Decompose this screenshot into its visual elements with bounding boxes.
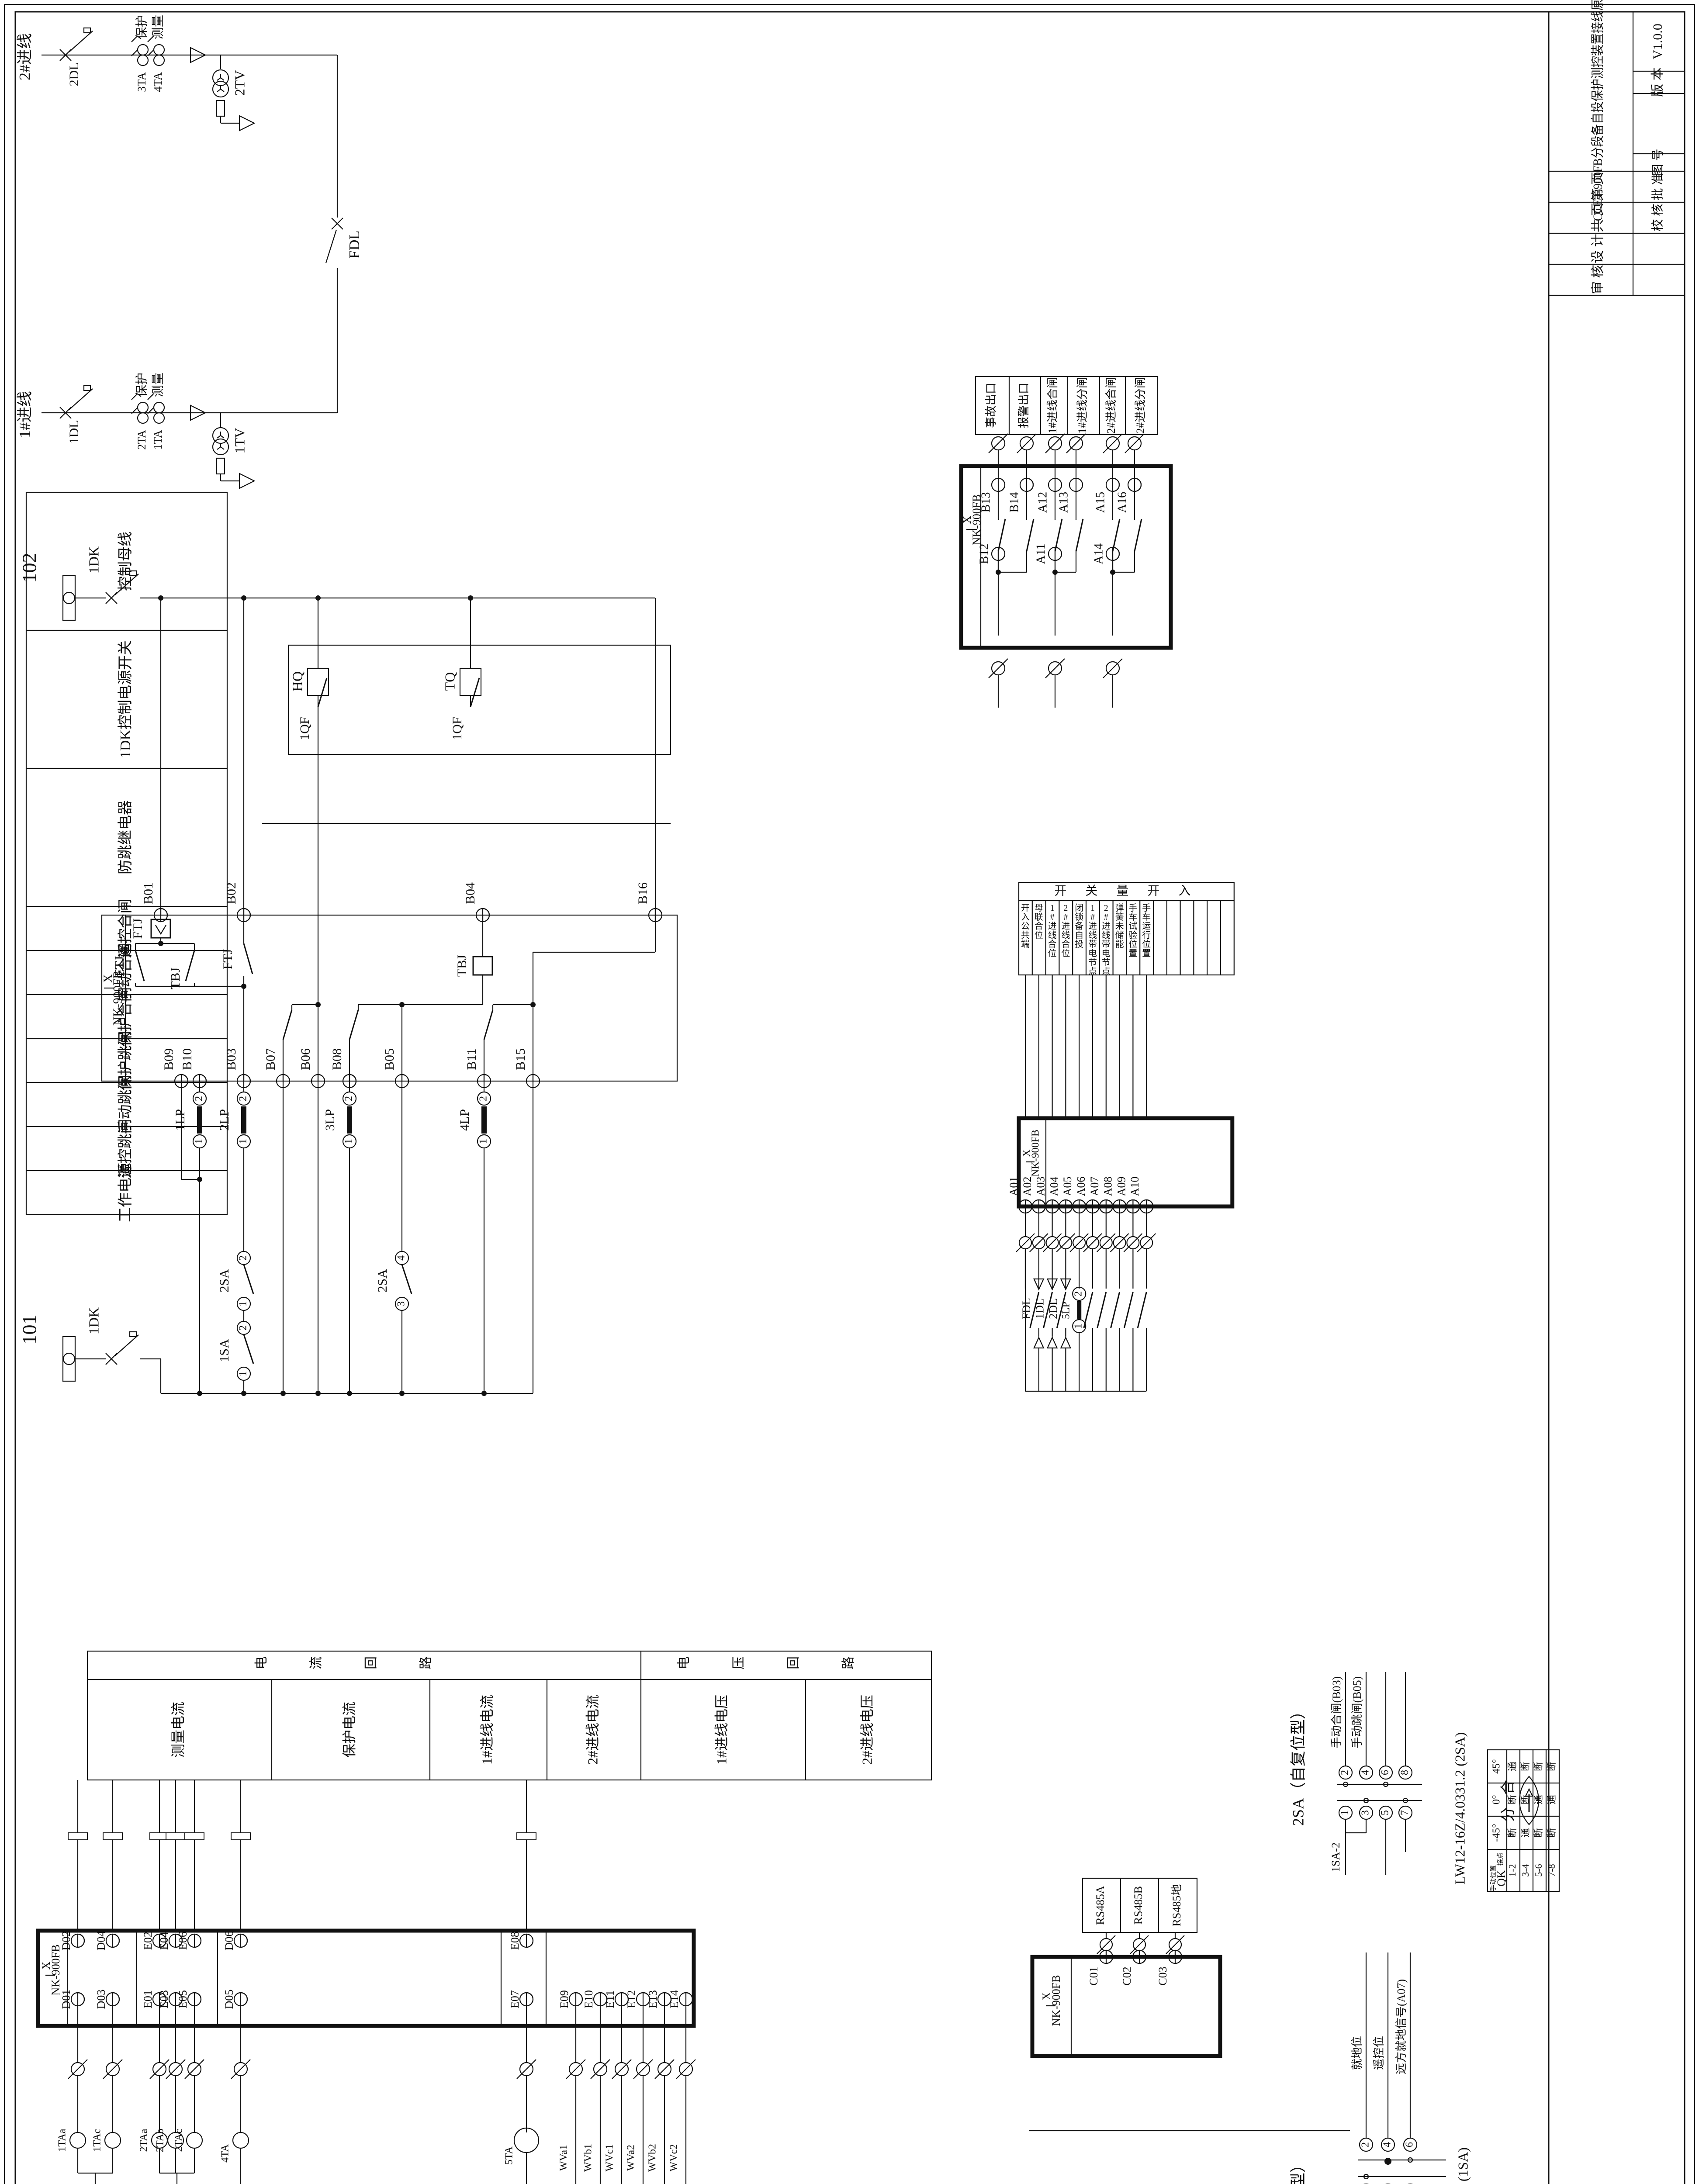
coil-label: HQ (289, 671, 305, 691)
terminal-label: E02 (142, 1932, 154, 1950)
comm-label: RS485B (1132, 1886, 1145, 1925)
qk-cell: 通 (1507, 1762, 1518, 1771)
aux-contact-label: 1QF (450, 717, 464, 740)
device-name: NK-900FB (1050, 1975, 1062, 2026)
contact-number: 2 (1339, 1770, 1351, 1775)
contact-blade (471, 678, 479, 707)
junction-dot (1384, 2158, 1391, 2165)
link-strap (347, 1106, 352, 1133)
qk-cell: 通 (1546, 1795, 1557, 1804)
ct-circle (138, 402, 148, 413)
terminal-label: B01 (141, 882, 156, 904)
bus-label: 102 (18, 553, 41, 583)
terminal-half-fill (1113, 478, 1119, 491)
switch-title: 1SA（定位型） (1289, 2157, 1307, 2184)
contact-number: 2 (238, 1096, 249, 1101)
terminal-half-fill (194, 1934, 201, 1947)
wiring-diagram-canvas: CCET-900FB分段备自投保护测控装置接线原理图第 页共 页设 计审 核V1… (0, 0, 1699, 2184)
junction-dot (481, 1391, 487, 1396)
qk-cell: 通 (1520, 1828, 1531, 1838)
terminal-label: A11 (1034, 543, 1048, 564)
ct-circle (154, 402, 164, 413)
switch-title: 2SA（自复位型） (1289, 1704, 1307, 1826)
wire (221, 89, 224, 92)
terminal-label: A02 (1021, 1177, 1034, 1196)
switch-model: LW12-16Z/4.0331.2 (2SA) (1452, 1732, 1467, 1885)
input-column-label: 手车运行位置 (1142, 903, 1151, 958)
link-label: 4LP (457, 1109, 472, 1131)
qk-cell: QK (1495, 1870, 1508, 1887)
jumper-label: 1SA-2 (1329, 1842, 1342, 1872)
function-cell-label: 1DK控制电源开关 (117, 640, 134, 758)
contact-blade (998, 519, 1005, 551)
terminal-half-fill (241, 1993, 247, 2006)
test-link-bar (68, 1833, 87, 1840)
contact-number: 1 (194, 1139, 205, 1144)
contact-number: 3 (396, 1301, 407, 1306)
terminal-label: B16 (636, 882, 650, 904)
dk-label: 1DK (86, 1307, 101, 1334)
pt-wire-label: WVa1 (558, 2145, 570, 2171)
terminal-label: E13 (647, 1990, 659, 2008)
terminal-label: B05 (382, 1048, 397, 1070)
terminal-half-fill (113, 1934, 119, 1947)
contact-blade (349, 1010, 358, 1040)
terminal-label: E09 (558, 1990, 571, 2008)
indicator-left: 分 (1500, 1807, 1516, 1822)
ac-cell-label: 保护电流 (341, 1702, 357, 1758)
contact-blade (283, 1010, 292, 1040)
ct-label: 2TA (135, 430, 148, 450)
switch-model: LW12-16/4.5711.3 (1SA) (1455, 2147, 1471, 2184)
terminal-label: A16 (1115, 492, 1129, 513)
test-link-bar (103, 1833, 122, 1840)
qk-cell: 7-8 (1546, 1864, 1557, 1876)
comm-label: RS485A (1094, 1886, 1107, 1925)
relay-label: TBJ (455, 955, 469, 977)
device-name: NK-900FB (49, 1944, 62, 1995)
switch-blade (326, 230, 336, 263)
link-label: 1LP (173, 1109, 187, 1131)
junction-dot (158, 595, 163, 601)
terminal-label: A06 (1075, 1177, 1087, 1196)
aux-contact-label: 1QF (298, 717, 312, 740)
terminal-label: E03 (158, 1990, 170, 2008)
link-strap (1077, 1301, 1081, 1319)
relay-label: FTJ (131, 918, 145, 939)
contact-number: 5 (1380, 1810, 1391, 1815)
fuse (217, 100, 225, 116)
terminal-label: A09 (1115, 1177, 1128, 1196)
input-column-label: 2#进线合位 (1061, 903, 1070, 958)
wire (217, 447, 221, 449)
contact-number: 1 (343, 1139, 355, 1144)
pt-wire-label: WVb1 (583, 2144, 594, 2172)
ac-cell-label: 测量电流 (170, 1702, 186, 1758)
terminal-label: A13 (1057, 492, 1070, 513)
output-label: 报警出口 (1017, 383, 1030, 428)
terminal-label: B09 (162, 1048, 176, 1070)
bus-terminal-circle (63, 592, 75, 604)
fuse (217, 458, 225, 474)
contact-number: 1 (1073, 1324, 1084, 1329)
terminal-half-fill (241, 1934, 247, 1947)
contact-blade (1124, 1292, 1133, 1328)
contact-blade (402, 1265, 412, 1294)
ct-use-label: 测量 (151, 15, 165, 39)
contact-number: 1 (478, 1139, 489, 1144)
coil-mark (156, 925, 166, 934)
contact-number: 7 (1399, 1810, 1411, 1815)
link-strap (241, 1106, 246, 1133)
output-label-table (976, 377, 1158, 435)
terminal-half-fill (113, 1993, 119, 2006)
ct-label: 4TA (220, 2144, 231, 2163)
contact-blade (1084, 1292, 1093, 1328)
terminal-label: C03 (1156, 1966, 1169, 1985)
ct-label: 4TA (152, 72, 164, 92)
ct-label: 5TA (504, 2146, 515, 2165)
output-label: 2#进线分闸 (1134, 377, 1147, 434)
input-column-label: 2#进线带电节点 (1102, 903, 1111, 977)
terminal-label: C01 (1087, 1966, 1100, 1985)
qk-cell: 5-6 (1533, 1864, 1544, 1876)
contact-blade (1097, 1292, 1106, 1328)
ct-use-label: 保护 (135, 373, 149, 397)
input-column-label: 手车试验位置 (1128, 903, 1137, 958)
contact-blade (318, 678, 327, 707)
ct-circle (154, 45, 164, 55)
bus-terminal-circle (63, 1353, 75, 1365)
terminal-half-fill (526, 1993, 533, 2006)
pt-wire-label: WVc2 (668, 2144, 680, 2172)
terminal-label: A08 (1102, 1177, 1114, 1196)
output-label: 1#进线合闸 (1046, 377, 1059, 434)
qk-cell: 断 (1507, 1828, 1518, 1838)
contact-blade (244, 1334, 253, 1364)
terminal-label: E07 (509, 1990, 521, 2008)
arrow-up (1061, 1337, 1070, 1348)
contact-blade (1138, 1292, 1146, 1328)
junction-dot (399, 1391, 405, 1396)
terminal-label: A14 (1092, 543, 1105, 564)
terminal-half-fill (686, 1993, 692, 2006)
ct-secondary (105, 2132, 121, 2148)
wire (217, 435, 221, 438)
contact-blade (186, 950, 194, 981)
input-column-label: 1#进线带电节点 (1088, 903, 1097, 977)
pages-label: 共 页 (1591, 203, 1605, 232)
terminal-label: A10 (1128, 1177, 1141, 1196)
version-label: 版 本 (1651, 67, 1665, 97)
switch-name-label: 2SA (217, 1269, 232, 1292)
junction-dot (468, 595, 473, 601)
pt-label: 2TV (232, 70, 247, 96)
function-cell-label: 工作电源 (117, 1163, 134, 1222)
terminal-half-fill (1055, 478, 1062, 491)
contact-blade (1113, 519, 1120, 551)
contact-blade (244, 943, 253, 974)
arrow-right (239, 473, 254, 488)
contact-label: FTJ (112, 956, 127, 976)
ct-circle (138, 45, 148, 55)
junction-dot (280, 1391, 286, 1396)
relay-coil (151, 919, 170, 938)
ac-cell-label: 2#进线电流 (585, 1695, 600, 1765)
input-column-label: 母联合位 (1035, 903, 1043, 940)
contact-number: 2 (1360, 2142, 1371, 2147)
output-label: 2#进线合闸 (1105, 377, 1118, 434)
contact-number: 6 (1404, 2142, 1415, 2147)
wire (221, 435, 224, 438)
terminal-label: E08 (509, 1932, 521, 1950)
terminal-label: B07 (263, 1048, 278, 1070)
link-strap (197, 1106, 202, 1133)
qk-cell: 接点 (1496, 1852, 1504, 1866)
bus-terminal (63, 1337, 75, 1381)
qk-cell: 1-2 (1507, 1864, 1518, 1876)
output-label: 1#进线分闸 (1076, 377, 1089, 434)
tie-breaker-label: FDL (346, 231, 363, 259)
review-label: 审 核 (1591, 265, 1605, 294)
inner-border (15, 12, 1685, 2184)
ac-table (87, 1651, 931, 1780)
arrow-right (239, 116, 254, 131)
contact-number: 1 (238, 1371, 249, 1376)
function-cell-label: 控制母线 (117, 532, 134, 591)
terminal-label: A01 (1007, 1177, 1020, 1196)
wire (217, 89, 221, 92)
terminal-label: A03 (1035, 1177, 1047, 1196)
terminal-half-fill (1076, 478, 1083, 491)
output-label: 事故出口 (985, 383, 997, 428)
terminal-half-fill (998, 478, 1005, 491)
pt-wire-label: WVb2 (647, 2144, 658, 2172)
switch-blade (69, 31, 93, 52)
function-cell-label: 防跳继电器 (117, 800, 134, 874)
diagram-content: CCET-900FB分段备自投保护测控装置接线原理图第 页共 页设 计审 核V1… (16, 0, 1665, 2184)
terminal-label: C02 (1121, 1966, 1133, 1985)
ct-label: 2TAc (173, 2129, 185, 2152)
switch-box (84, 386, 90, 390)
terminal-half-fill (1135, 478, 1141, 491)
breaker-mechanism-box (288, 645, 671, 754)
ct-secondary (187, 2132, 202, 2148)
terminal-label: B13 (979, 492, 993, 513)
ct-circle (154, 413, 164, 423)
wire (221, 78, 224, 80)
wire (217, 78, 221, 80)
contact-number: 2 (478, 1096, 489, 1101)
terminal-label: B12 (977, 544, 991, 564)
contact-number: 1 (238, 1139, 249, 1144)
terminal-label: A12 (1036, 492, 1049, 513)
bus-label: 101 (18, 1315, 41, 1345)
qk-cell: 3-4 (1520, 1864, 1531, 1876)
junction-dot (241, 595, 246, 601)
terminal-label: E06 (176, 1932, 189, 1950)
ct-use-label: 保护 (135, 15, 149, 39)
contact-blade (1135, 519, 1142, 551)
ct-label: 1TA (152, 430, 164, 450)
voltage-header: 电 压 回 路 (677, 1637, 856, 1669)
input-table-header: 开 关 量 开 入 (1054, 884, 1198, 898)
terminal-label: B04 (463, 882, 478, 904)
current-header: 电 流 回 路 (254, 1637, 433, 1669)
ct-secondary (233, 2132, 249, 2148)
ct-secondary (70, 2132, 86, 2148)
terminal-half-fill (576, 1993, 582, 2006)
ct-label: 1TAc (92, 2129, 103, 2152)
terminal-label: E10 (582, 1990, 595, 2008)
qk-cell: 断 (1546, 1762, 1557, 1771)
junction-dot (197, 1391, 202, 1396)
sheet-no-label: 图 号 (1651, 149, 1664, 176)
qk-cell: 45° (1491, 1759, 1502, 1774)
ac-cell-label: 1#进线电压 (713, 1695, 729, 1765)
breaker-label: 1DL (67, 420, 81, 444)
contact-number: 1 (238, 1301, 249, 1306)
contact-number: 2 (343, 1096, 355, 1101)
terminal-label: E11 (604, 1990, 616, 2008)
link-label: 3LP (323, 1109, 337, 1131)
input-column-label: 1#进线合位 (1048, 903, 1057, 958)
drawing-frame (4, 4, 1695, 2184)
terminal-label: A05 (1061, 1177, 1074, 1196)
terminal-label: B02 (224, 882, 239, 904)
test-link-bar (185, 1833, 204, 1840)
version-value: V1.0.0 (1651, 24, 1665, 59)
terminal-half-fill (194, 1993, 201, 2006)
terminal-label: B10 (180, 1048, 194, 1070)
terminal-label: D04 (95, 1931, 107, 1951)
pt-wire-label: WVa2 (626, 2145, 637, 2171)
terminal-label: B03 (224, 1048, 239, 1070)
indicator-right: 合 (1500, 1780, 1516, 1795)
terminal-label: E01 (142, 1990, 154, 2008)
bus-terminal (63, 576, 75, 620)
ct-circle (138, 413, 148, 423)
contact-number: 2 (238, 1325, 249, 1330)
contact-number: 2 (1073, 1291, 1084, 1296)
contact-number: 1 (1339, 1810, 1351, 1815)
terminal-label: D03 (95, 1990, 107, 2009)
terminal-half-fill (1027, 478, 1033, 491)
arrow-up (1034, 1337, 1044, 1348)
terminal-label: D01 (60, 1990, 73, 2009)
contact-blade (1055, 519, 1062, 551)
arrow-up (1048, 1337, 1057, 1348)
junction-dot (347, 1391, 352, 1396)
device-name: NK-900FB (111, 971, 125, 1026)
ct-label: 2TAa (138, 2129, 150, 2152)
link-label: 5LP (1061, 1302, 1072, 1319)
switch-wire-label: 遥控位 (1373, 2036, 1385, 2070)
page-label: 第 页 (1591, 172, 1605, 201)
ct-use-label: 测量 (151, 373, 165, 397)
terminal-half-fill (78, 1993, 84, 2006)
input-column-label: 闭锁备自投 (1075, 903, 1083, 949)
switch-wire-label: 就地位 (1351, 2036, 1363, 2070)
qk-cell: 断 (1520, 1762, 1531, 1771)
terminal-label: E05 (176, 1990, 189, 2008)
pt-label: 1TV (232, 428, 247, 454)
schematic-sheet: CCET-900FB分段备自投保护测控装置接线原理图第 页共 页设 计审 核V1… (0, 0, 1699, 2184)
feeder-label: 2#进线 (16, 33, 33, 80)
aux-contact-label: FDL (1020, 1298, 1033, 1319)
contact-number: 2 (238, 1255, 249, 1261)
input-column-label: 开入公共端 (1021, 903, 1030, 949)
contact-number: 4 (1382, 2142, 1393, 2147)
ac-cell-label: 1#进线电流 (479, 1695, 495, 1765)
contact-number: 4 (396, 1255, 407, 1261)
contact-number: 4 (1360, 1770, 1371, 1775)
terminal-label: B11 (464, 1049, 479, 1070)
contact-blade (1027, 519, 1034, 551)
test-link-bar (166, 1833, 185, 1840)
junction-dot (241, 1391, 246, 1396)
relay-coil (473, 957, 492, 975)
breaker-label: 2DL (67, 62, 81, 86)
check-label: 校 核 (1651, 204, 1664, 231)
input-column-label: 弹簧未储能 (1115, 903, 1124, 949)
terminal-label: B06 (298, 1048, 313, 1070)
aux-contact-label: 1DL (1034, 1298, 1046, 1319)
contact-blade (244, 1265, 253, 1294)
dk-label: 1DK (86, 546, 101, 574)
link-strap (481, 1106, 487, 1133)
qk-cell: 0° (1491, 1795, 1502, 1804)
ct-circle (154, 55, 164, 66)
contact-number: 6 (1380, 1770, 1391, 1775)
switch-wire-label: 远方就地信号(A07) (1395, 1979, 1408, 2074)
contact-blade (1111, 1292, 1120, 1328)
wire (221, 447, 224, 449)
terminal-label: E14 (668, 1990, 681, 2008)
switch-wire-label: 手动合闸(B03) (1330, 1676, 1343, 1749)
ct-label: 1TAa (57, 2129, 68, 2152)
terminal-label: B15 (513, 1048, 528, 1070)
terminal-label: D05 (223, 1990, 235, 2009)
aux-contact-label: 2DL (1047, 1298, 1059, 1319)
ct-label: 2TAb (155, 2129, 166, 2152)
contact-blade (484, 1010, 493, 1040)
approve-label: 批 准 (1651, 173, 1664, 200)
ac-cell-label: 2#进线电压 (859, 1695, 875, 1765)
terminal-label: E04 (158, 1932, 170, 1950)
device-name: NK-900FB (1030, 1130, 1042, 1177)
link-label: 2LP (217, 1109, 232, 1131)
switch-name-label: 1SA (217, 1339, 232, 1362)
switch-name-label: 2SA (375, 1269, 390, 1292)
ct-circle (138, 55, 148, 66)
terminal-label: D06 (223, 1931, 235, 1951)
coil-label: TQ (442, 672, 457, 691)
terminal-half-fill (78, 1934, 84, 1947)
junction-dot (315, 1391, 321, 1396)
contact-number: 8 (1399, 1770, 1411, 1775)
terminal-label: A04 (1048, 1177, 1060, 1196)
comm-label: RS485地 (1170, 1884, 1183, 1927)
outer-border (4, 4, 1695, 2184)
design-label: 设 计 (1591, 234, 1605, 263)
junction-dot (315, 595, 321, 601)
contact-blade (135, 950, 144, 981)
pt-wire-label: WVc1 (604, 2144, 616, 2172)
qk-cell: -45° (1491, 1824, 1502, 1842)
test-link-bar (517, 1833, 536, 1840)
terminal-half-fill (526, 1934, 533, 1947)
